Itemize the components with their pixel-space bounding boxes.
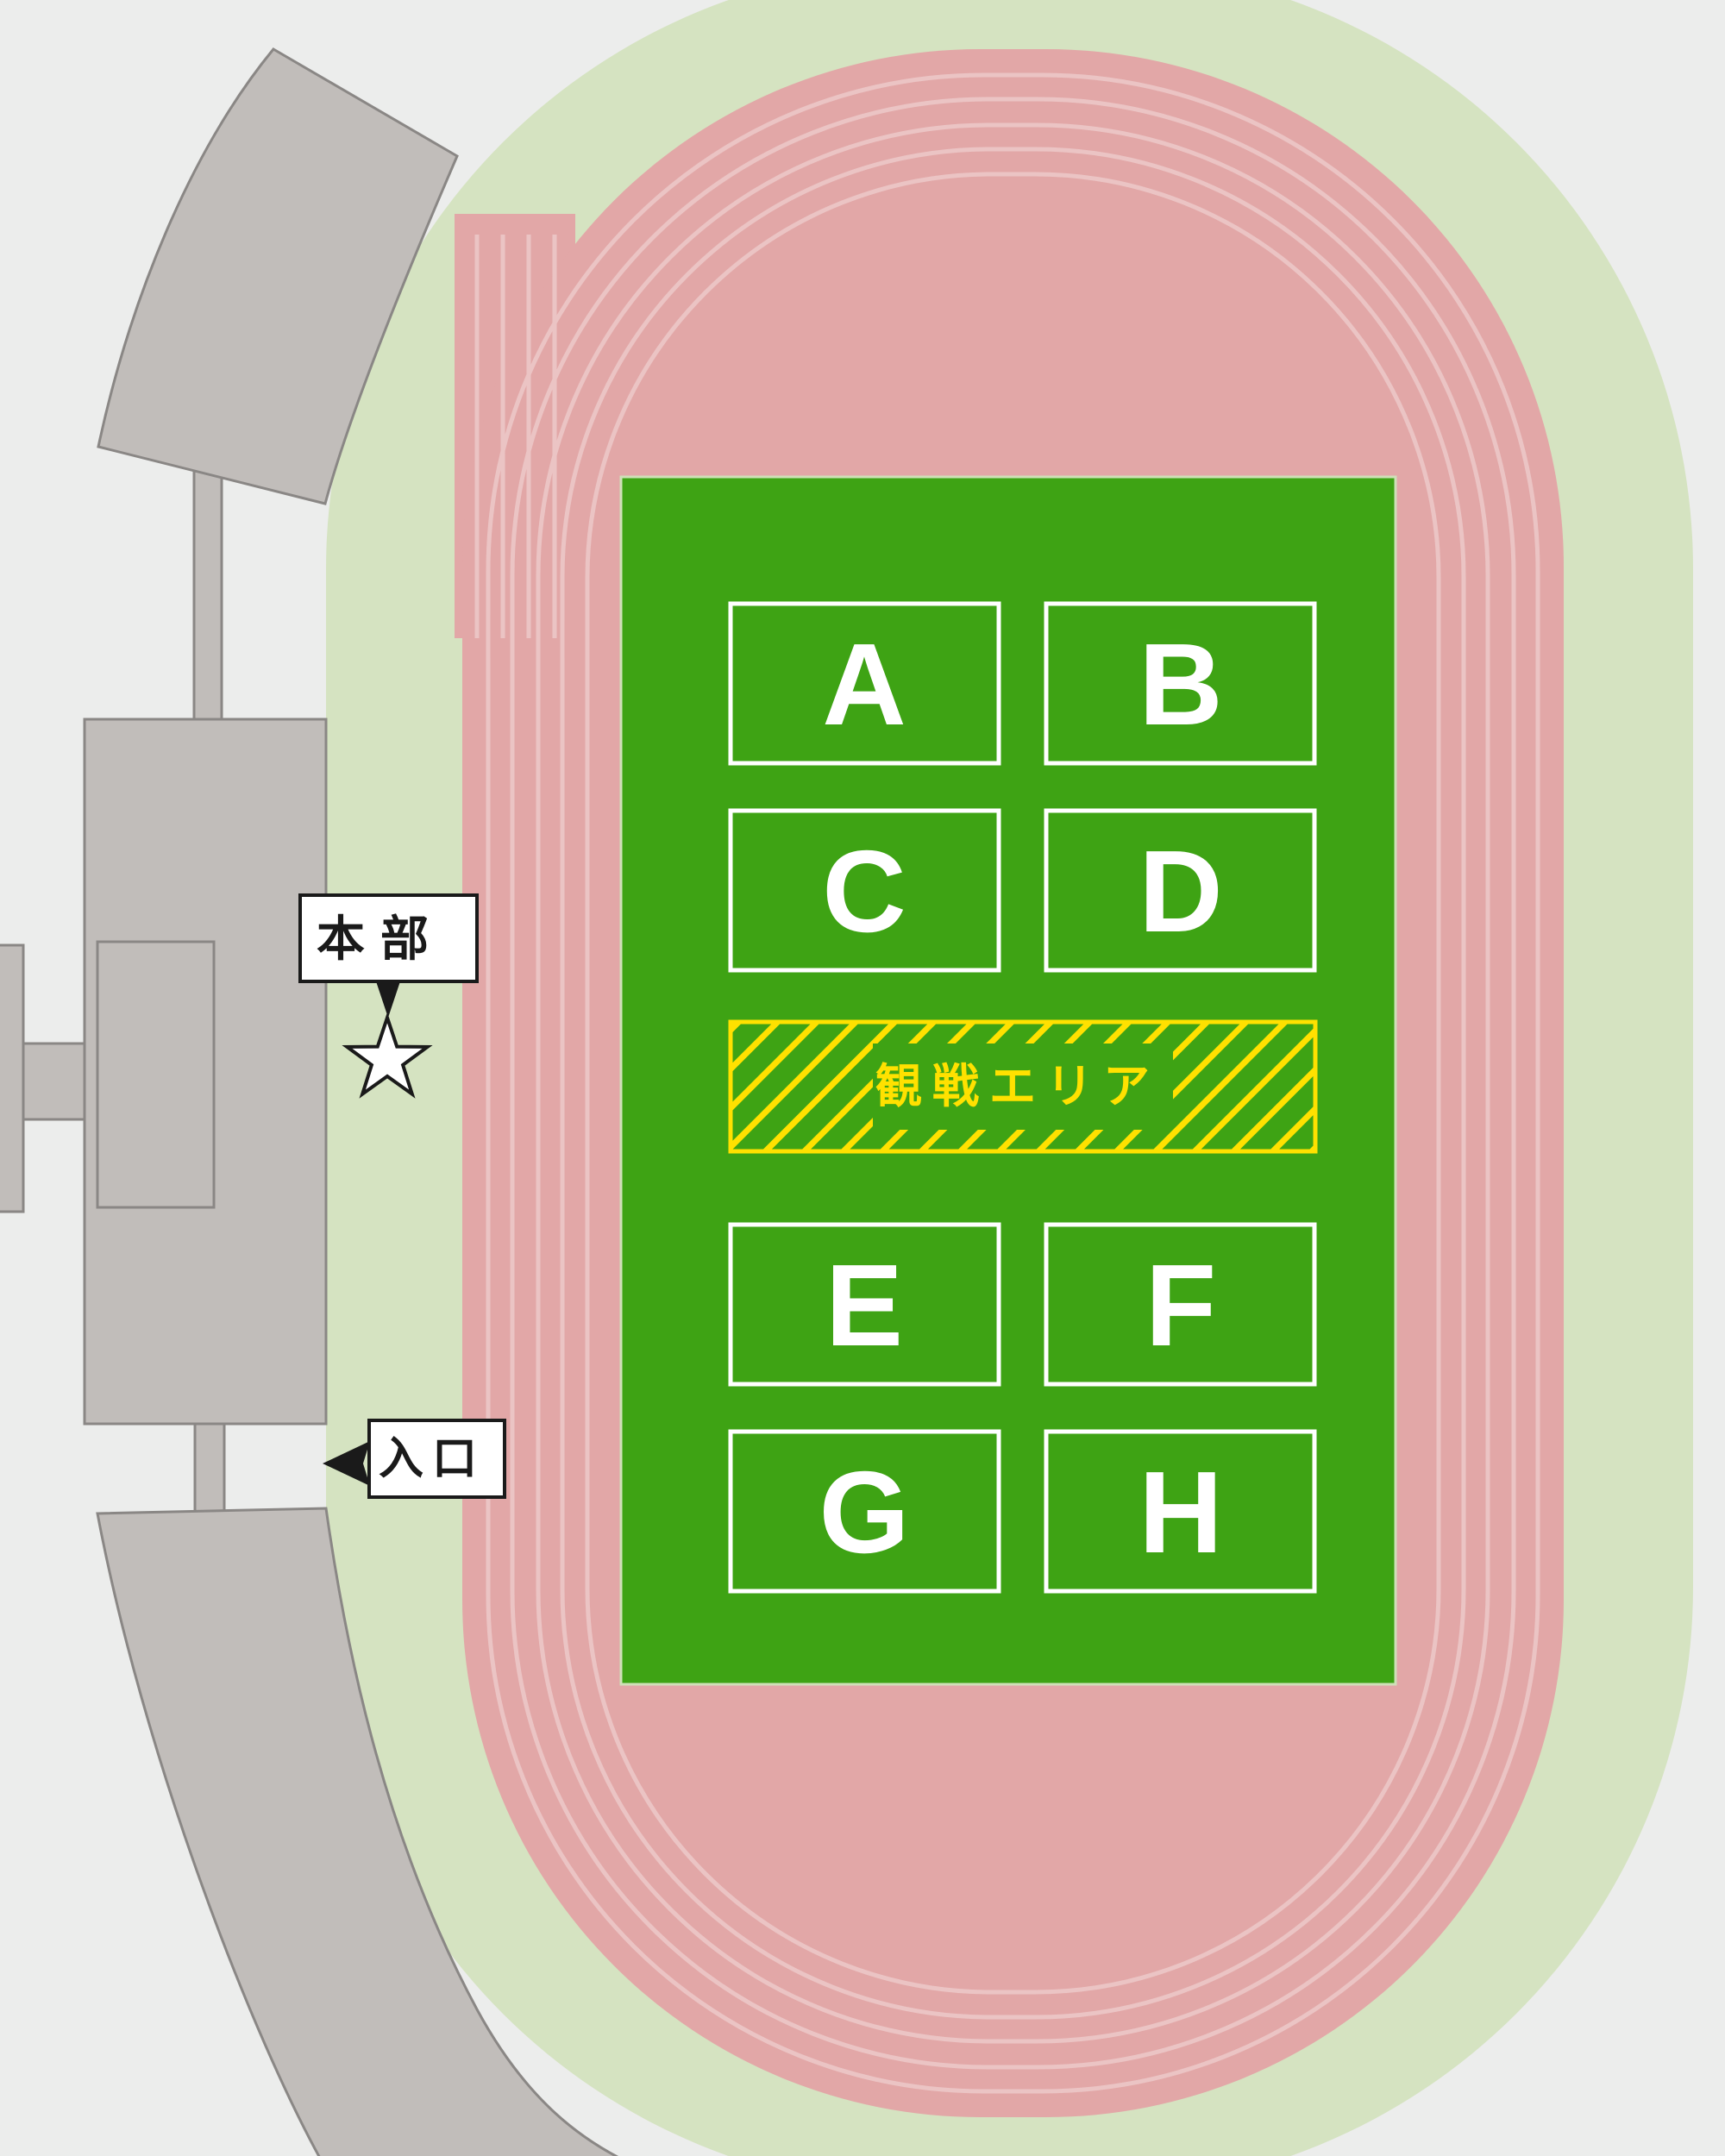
corridor bbox=[17, 1044, 88, 1119]
entrance-label: 入口 bbox=[379, 1434, 486, 1484]
stand-connector-south bbox=[195, 1419, 224, 1514]
zone-label-d: D bbox=[1138, 826, 1223, 956]
stadium-map: A B C D E F G H 観戦エリア bbox=[0, 0, 1725, 2156]
spectator-area-label: 観戦エリア bbox=[875, 1061, 1160, 1112]
zone-label-c: C bbox=[822, 826, 906, 956]
stand-connector-north bbox=[194, 466, 222, 724]
zone-label-f: F bbox=[1145, 1240, 1216, 1370]
building-annex-west bbox=[0, 945, 23, 1212]
zone-label-b: B bbox=[1138, 619, 1223, 749]
zone-label-a: A bbox=[822, 619, 906, 749]
headquarters-label: 本部 bbox=[317, 912, 444, 966]
zone-label-h: H bbox=[1138, 1447, 1223, 1577]
building-inner-room bbox=[97, 942, 214, 1207]
zone-label-e: E bbox=[825, 1240, 903, 1370]
spectator-area-band: 観戦エリア bbox=[731, 1022, 1315, 1151]
zone-label-g: G bbox=[819, 1447, 909, 1577]
